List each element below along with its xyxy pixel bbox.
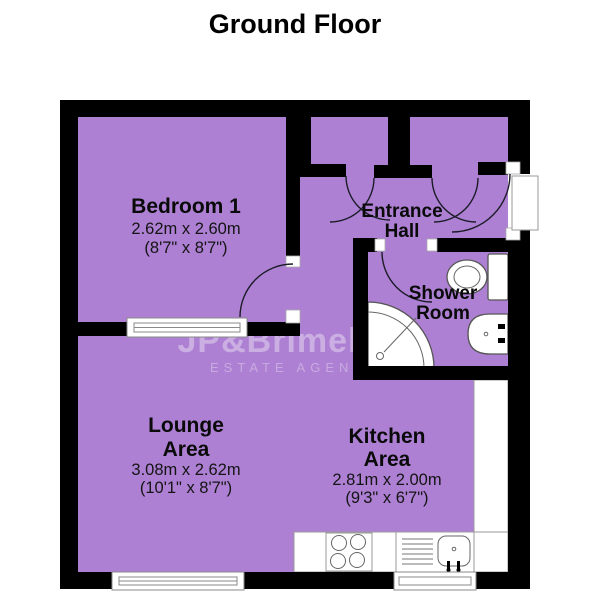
wall-shower-bottom [353, 366, 530, 380]
shower-room-line2: Room [416, 303, 470, 324]
window-lounge [112, 572, 244, 590]
cupboard-divider-foot [374, 165, 432, 178]
kitchen-line2: Area [364, 448, 411, 471]
bedroom1-metric: 2.62m x 2.60m [131, 220, 240, 238]
wash-basin [468, 314, 508, 354]
wall-bedroom-hall [286, 117, 300, 258]
wall-shower-top-b [437, 238, 508, 252]
bedroom1-imperial: (8'7" x 8'7") [144, 239, 227, 257]
cupboard-divider [388, 117, 410, 167]
hob [326, 533, 372, 571]
page-title: Ground Floor [209, 9, 382, 39]
label-shower-room: Shower Room [409, 283, 478, 324]
cupboard-stub-left [298, 164, 346, 177]
kitchen-metric: 2.81m x 2.00m [332, 471, 441, 489]
label-bedroom1: Bedroom 1 2.62m x 2.60m (8'7" x 8'7") [131, 195, 241, 257]
lounge-imperial: (10'1" x 8'7") [140, 479, 232, 497]
wall-shower-left [353, 238, 368, 380]
wall-shower-top-a [353, 238, 377, 252]
kitchen-line1: Kitchen [348, 425, 425, 448]
outer-wall-right-lower [508, 230, 530, 589]
outer-wall-top [60, 100, 530, 117]
entrance-hall-line1: Entrance [361, 201, 442, 222]
cupboard-stub-right [478, 162, 508, 175]
entrance-door-leaf [512, 176, 538, 230]
floorplan-page: Ground Floor JP&Brimel ESTATE AGENTS [0, 0, 600, 600]
lounge-metric: 3.08m x 2.62m [131, 461, 240, 479]
shower-room-line1: Shower [409, 283, 478, 304]
sink-drainer [396, 532, 474, 572]
window-bedroom-partition [127, 318, 247, 337]
lounge-line2: Area [163, 438, 210, 461]
entrance-hall-line2: Hall [385, 221, 420, 242]
bedroom1-name: Bedroom 1 [131, 195, 241, 218]
lounge-line1: Lounge [148, 414, 224, 437]
outer-wall-left [60, 100, 78, 589]
floorplan-svg: Ground Floor JP&Brimel ESTATE AGENTS [0, 0, 600, 600]
window-kitchen [394, 572, 476, 590]
kitchen-imperial: (9'3" x 6'7") [345, 489, 428, 507]
